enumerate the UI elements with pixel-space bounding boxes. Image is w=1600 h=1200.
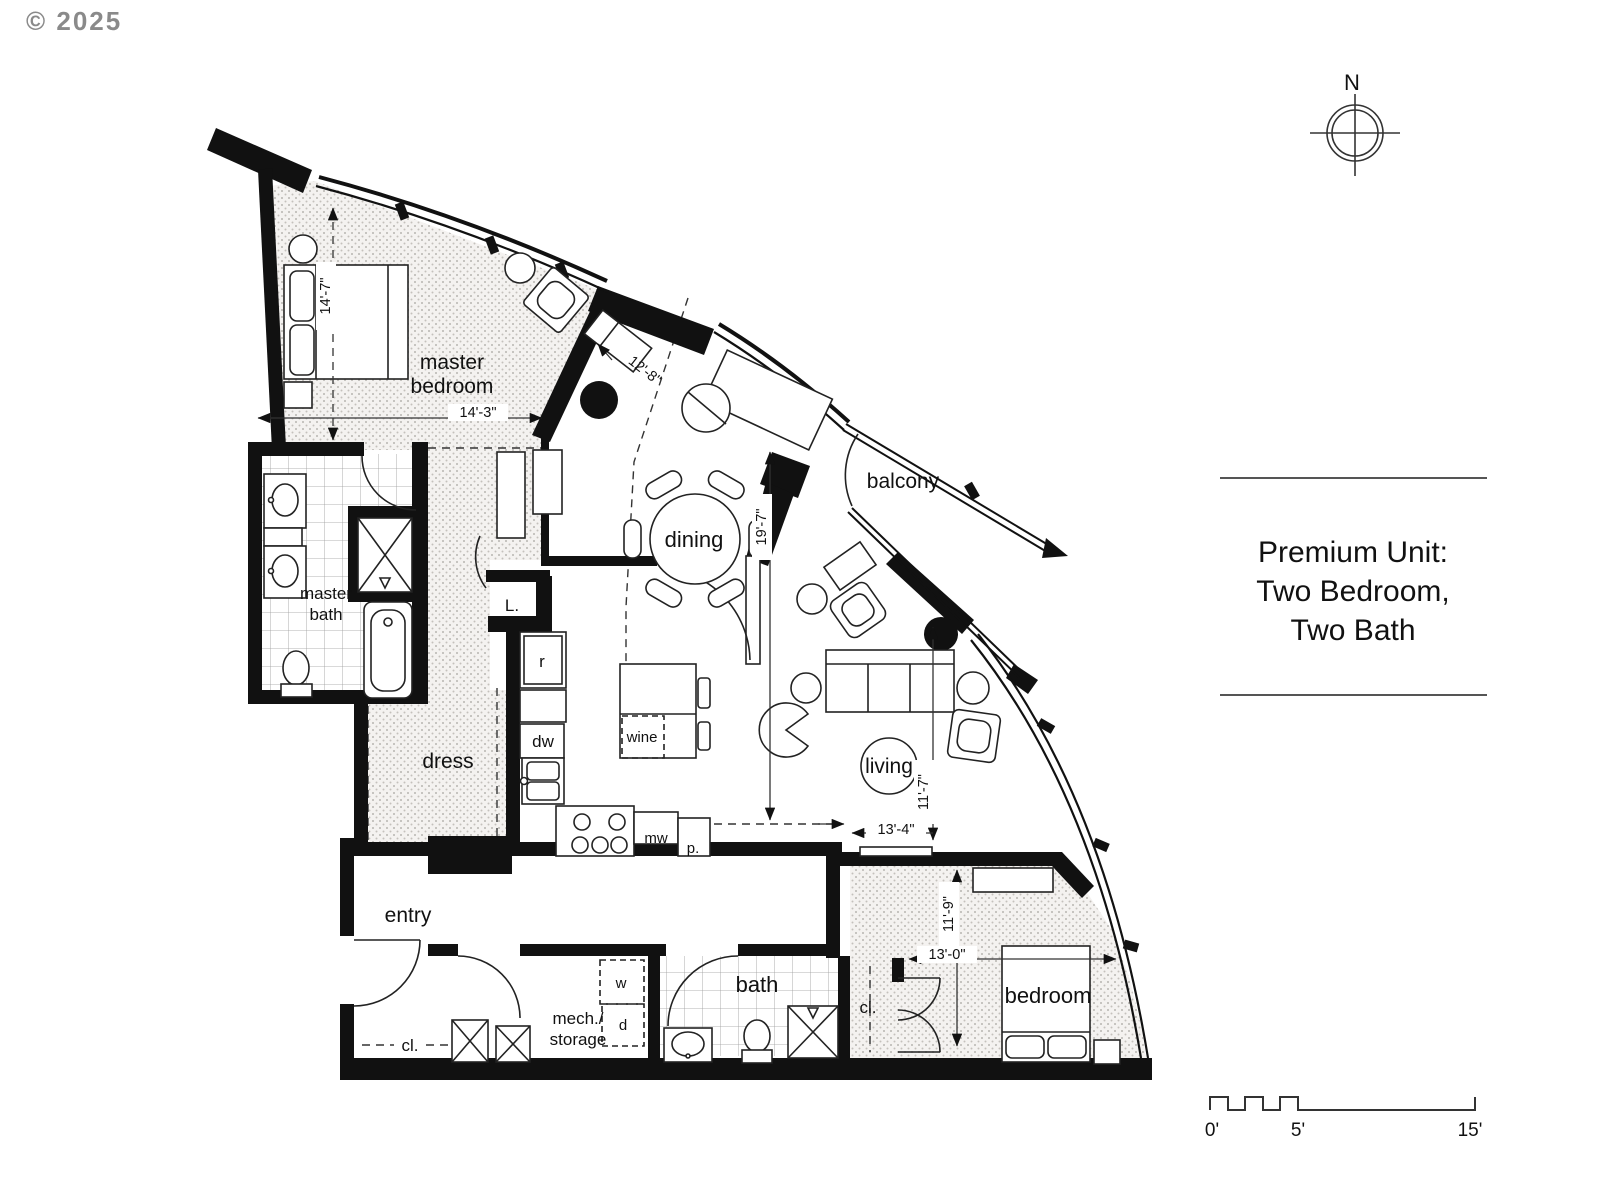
wardrobe (497, 452, 525, 538)
dim-living-width: 11'-7" (916, 774, 932, 810)
toilet (744, 1020, 770, 1052)
label-master-bath-2: bath (309, 605, 342, 624)
side-table (797, 584, 827, 614)
wardrobe (533, 450, 562, 514)
armchair (947, 709, 1001, 763)
label-balcony: balcony (867, 470, 940, 493)
label-wine: wine (626, 729, 658, 746)
north-label: N (1344, 70, 1360, 95)
dim-bedroom-depth: 11'-9" (941, 896, 957, 932)
nightstand (1094, 1040, 1120, 1064)
label-bath: bath (736, 972, 779, 997)
side-table (791, 673, 821, 703)
title-line-3: Two Bath (1290, 614, 1415, 647)
label-dress: dress (422, 750, 473, 773)
label-dining: dining (665, 527, 724, 552)
side-table (505, 253, 535, 283)
label-living: living (865, 755, 913, 778)
label-master-bedroom-2: bedroom (411, 375, 494, 398)
cabinet (520, 690, 566, 722)
floor-plan-svg: 14'-7" 14'-3" 12'-8" 19'-7" 11'-7" 13'-4… (0, 0, 1600, 1200)
north-arrow: N (1310, 70, 1400, 176)
label-pantry: p. (687, 840, 700, 857)
copyright-text: © 2025 (26, 6, 122, 36)
nightstand (284, 382, 312, 408)
armchair (759, 703, 808, 757)
toilet (283, 651, 309, 685)
label-master-bedroom-1: master (420, 351, 484, 374)
ottoman (824, 542, 876, 590)
sofa (826, 650, 954, 712)
label-closet-bedroom: cl. (860, 998, 877, 1017)
ledge (860, 847, 932, 856)
dim-master-bedroom-depth: 14'-7" (318, 278, 334, 315)
label-refrigerator: r (539, 652, 545, 671)
label-master-bath-1: master (300, 584, 352, 603)
label-mech-storage-1: mech./ (552, 1009, 603, 1028)
title-block: Premium Unit: Two Bedroom, Two Bath (1220, 478, 1487, 695)
dim-master-bedroom-width: 14'-3" (460, 405, 497, 421)
label-bedroom: bedroom (1005, 983, 1092, 1008)
label-entry: entry (385, 904, 432, 927)
side-table (957, 672, 989, 704)
label-closet-entry: cl. (402, 1036, 419, 1055)
dim-great-room-depth: 19'-7" (754, 509, 770, 546)
label-dishwasher: dw (532, 732, 554, 751)
dim-living-depth: 13'-4" (878, 822, 915, 838)
label-microwave: mw (644, 830, 667, 847)
scale-mid: 5' (1291, 1120, 1305, 1141)
title-line-2: Two Bedroom, (1256, 575, 1449, 608)
scale-bar: 0' 5' 15' (1205, 1097, 1482, 1141)
title-line-1: Premium Unit: (1258, 536, 1448, 569)
label-linen: L. (505, 596, 519, 615)
label-mech-storage-2: storage (550, 1030, 607, 1049)
scale-start: 0' (1205, 1120, 1219, 1141)
floor-plan-page: 14'-7" 14'-3" 12'-8" 19'-7" 11'-7" 13'-4… (0, 0, 1600, 1200)
dim-bedroom-width: 13'-0" (929, 947, 966, 963)
label-dryer: d (619, 1017, 627, 1034)
side-table (289, 235, 317, 263)
armchair (827, 579, 888, 640)
scale-end: 15' (1458, 1120, 1483, 1141)
dresser (973, 868, 1053, 892)
label-washer: w (615, 975, 627, 992)
